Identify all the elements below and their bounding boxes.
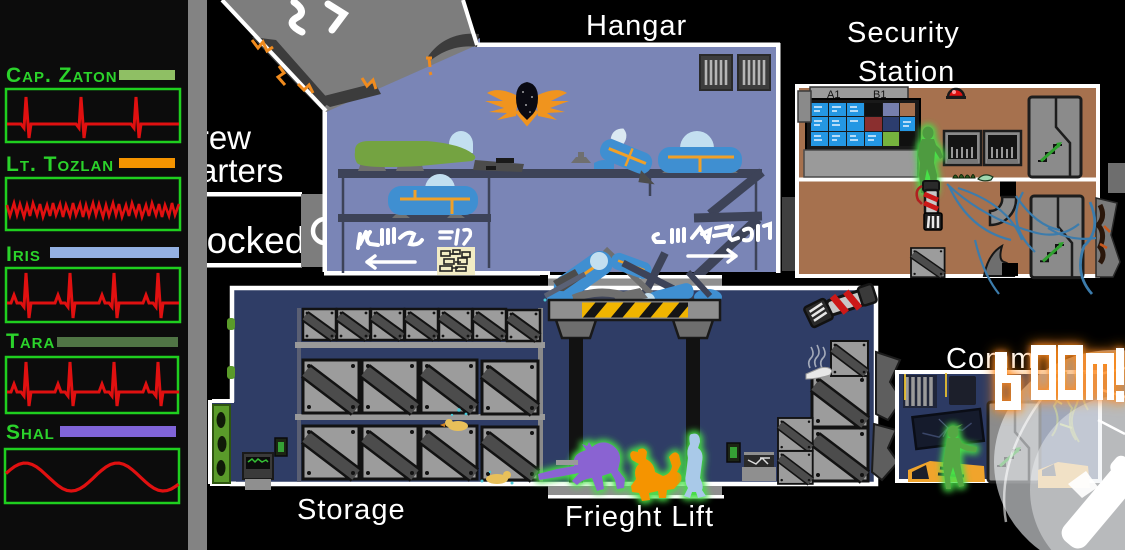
- svg-text:Lt. Tozlan: Lt. Tozlan: [6, 153, 114, 176]
- svg-text:Tara: Tara: [6, 330, 55, 353]
- svg-text:Comm: Comm: [946, 343, 1035, 375]
- svg-text:Storage: Storage: [297, 494, 406, 526]
- svg-text:Station: Station: [858, 56, 955, 88]
- svg-text:Security: Security: [847, 17, 960, 49]
- svg-text:Frieght Lift: Frieght Lift: [565, 501, 714, 533]
- svg-text:Shal: Shal: [6, 421, 55, 444]
- svg-text:Cap. Zaton: Cap. Zaton: [6, 64, 118, 87]
- svg-text:Iris: Iris: [6, 243, 41, 266]
- svg-text:Hangar: Hangar: [586, 10, 687, 42]
